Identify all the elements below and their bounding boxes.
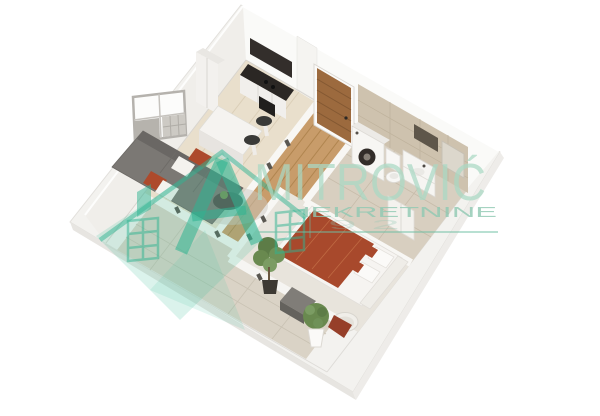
watermark-partial-digits: 9 2 [328, 217, 400, 232]
floor-plan-svg: MITROVIĆ NEKRETNINE 9 2 [0, 0, 600, 416]
cooktop-burner [271, 85, 275, 89]
door-handle [344, 116, 347, 119]
plant-pot-dark [262, 280, 278, 294]
floor-plan-render: MITROVIĆ NEKRETNINE 9 2 [0, 0, 600, 416]
cooktop-burner [264, 80, 268, 84]
tree-pot-white [308, 329, 324, 347]
washing-machine-knob [356, 132, 359, 135]
bar-stool-seat [244, 135, 260, 145]
bar-stool-seat [256, 116, 272, 126]
